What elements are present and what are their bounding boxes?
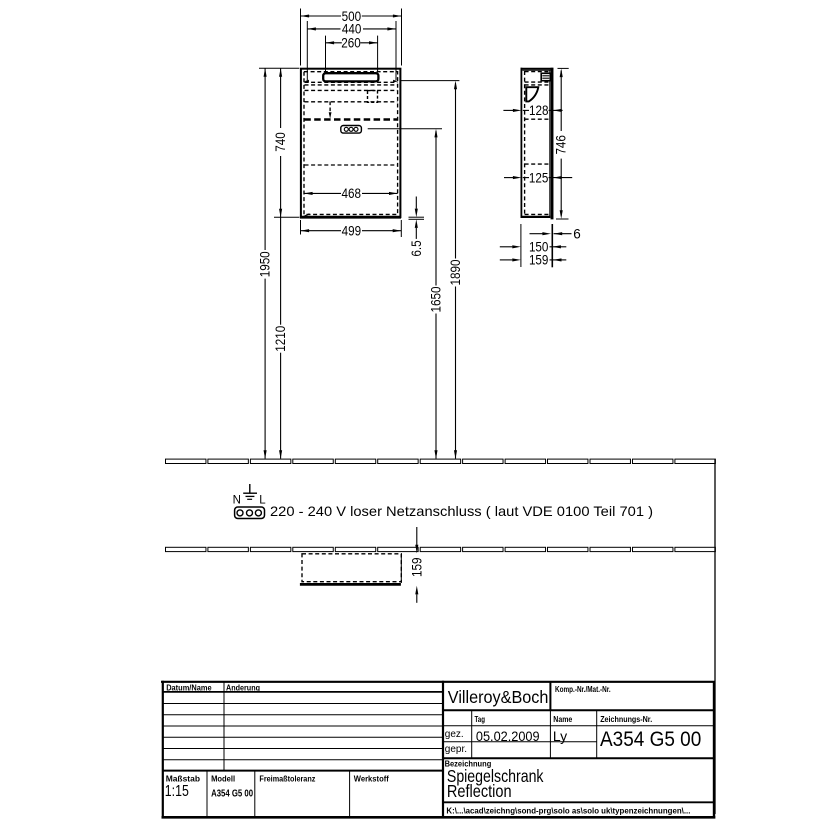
svg-text:Maßstab: Maßstab — [166, 774, 200, 784]
svg-text:N: N — [233, 495, 241, 507]
svg-text:A354 G5 00: A354 G5 00 — [600, 728, 701, 751]
svg-text:128: 128 — [529, 103, 549, 118]
svg-text:220 - 240 V loser Netzanschlus: 220 - 240 V loser Netzanschluss ( laut V… — [270, 504, 653, 519]
svg-text:Reflection: Reflection — [447, 781, 512, 801]
svg-text:499: 499 — [342, 224, 362, 239]
svg-text:A354 G5 00: A354 G5 00 — [211, 788, 253, 799]
svg-text:440: 440 — [342, 22, 362, 37]
svg-text:260: 260 — [341, 36, 361, 51]
svg-text:1950: 1950 — [258, 251, 273, 277]
svg-text:K:\...\acad\zeichng\sond-prg\s: K:\...\acad\zeichng\sond-prg\solo as\sol… — [446, 805, 690, 815]
svg-text:125: 125 — [529, 170, 549, 185]
svg-text:1650: 1650 — [429, 287, 444, 313]
svg-text:gepr.: gepr. — [445, 744, 467, 755]
svg-text:Freimaßtoleranz: Freimaßtoleranz — [259, 774, 315, 784]
svg-text:Anderung: Anderung — [226, 683, 260, 693]
svg-text:Modell: Modell — [211, 774, 235, 784]
svg-text:159: 159 — [529, 253, 549, 268]
svg-text:Ly: Ly — [553, 728, 567, 744]
svg-text:Datum/Name: Datum/Name — [166, 683, 212, 693]
svg-text:Zeichnungs-Nr.: Zeichnungs-Nr. — [600, 714, 652, 724]
svg-text:Villeroy&Boch: Villeroy&Boch — [448, 687, 549, 707]
svg-text:1:15: 1:15 — [165, 783, 189, 800]
svg-text:Name: Name — [553, 714, 572, 724]
svg-text:740: 740 — [273, 132, 288, 152]
svg-text:Tag: Tag — [475, 714, 486, 724]
svg-text:159: 159 — [409, 558, 424, 578]
svg-text:gez.: gez. — [445, 729, 464, 740]
svg-text:6: 6 — [573, 227, 581, 242]
svg-text:1890: 1890 — [448, 260, 463, 286]
svg-text:L: L — [259, 495, 266, 507]
svg-text:1210: 1210 — [273, 326, 288, 352]
svg-text:746: 746 — [554, 135, 569, 155]
svg-text:6.5: 6.5 — [409, 240, 424, 256]
svg-text:468: 468 — [342, 186, 362, 201]
svg-text:Werkstoff: Werkstoff — [354, 774, 389, 784]
svg-text:Komp.-Nr./Mat.-Nr.: Komp.-Nr./Mat.-Nr. — [555, 684, 611, 694]
svg-text:05.02.2009: 05.02.2009 — [476, 728, 540, 744]
